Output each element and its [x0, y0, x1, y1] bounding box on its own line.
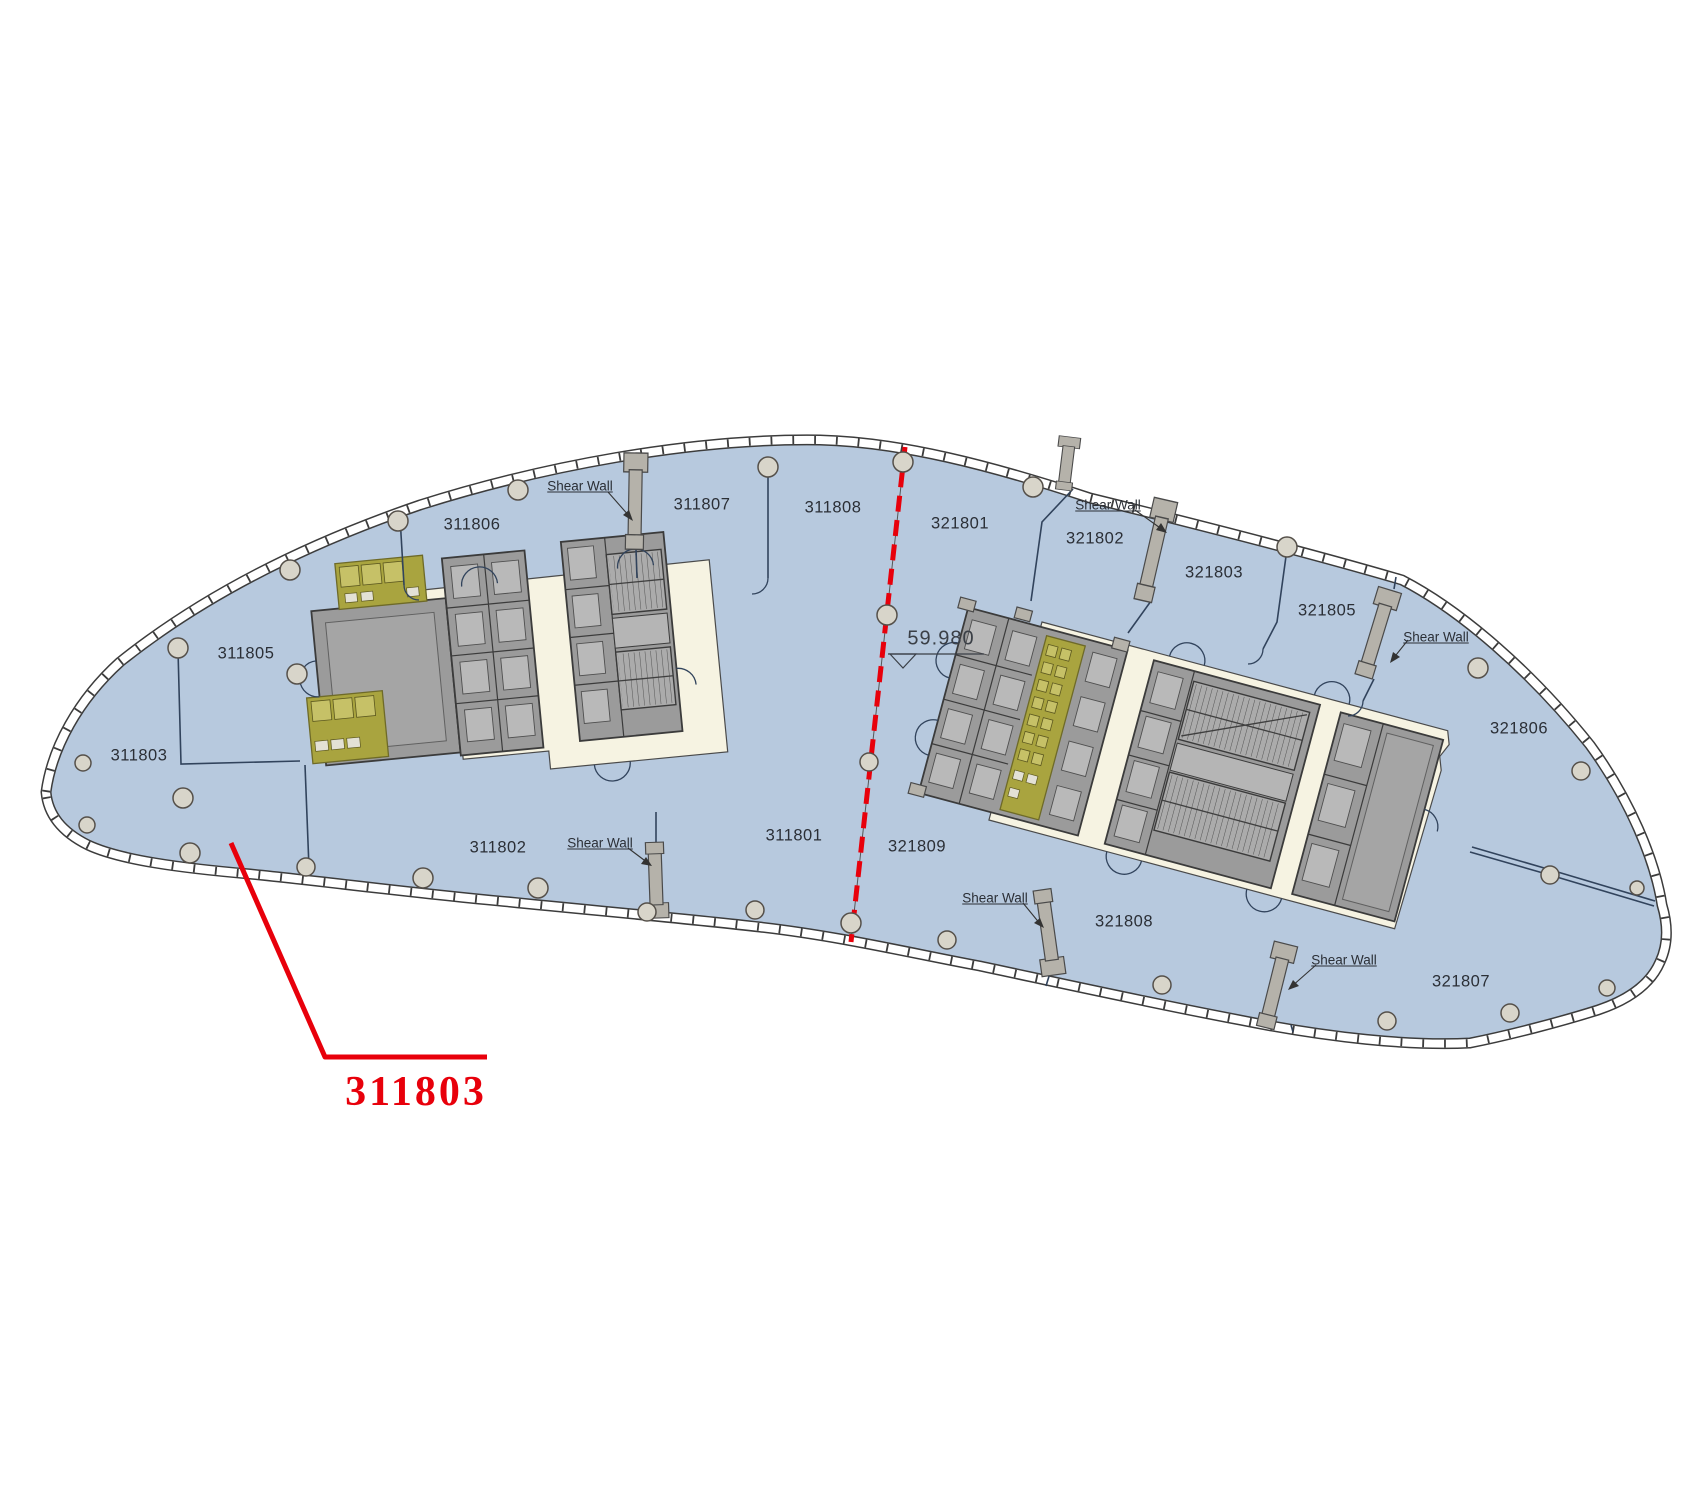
- left-core-elevator-bank-2: [561, 532, 683, 741]
- floor-plan-page: 59.980 311803 31180331180531180631180731…: [0, 0, 1700, 1487]
- left-core-elevator-bank-1: [442, 550, 544, 755]
- shear-wall-2: [1053, 436, 1081, 492]
- left-core-restroom-top: [335, 555, 427, 609]
- floor-plan-drawing: [0, 0, 1700, 1487]
- left-core-stair-2: [616, 647, 676, 710]
- left-core-restroom-bottom: [307, 691, 389, 764]
